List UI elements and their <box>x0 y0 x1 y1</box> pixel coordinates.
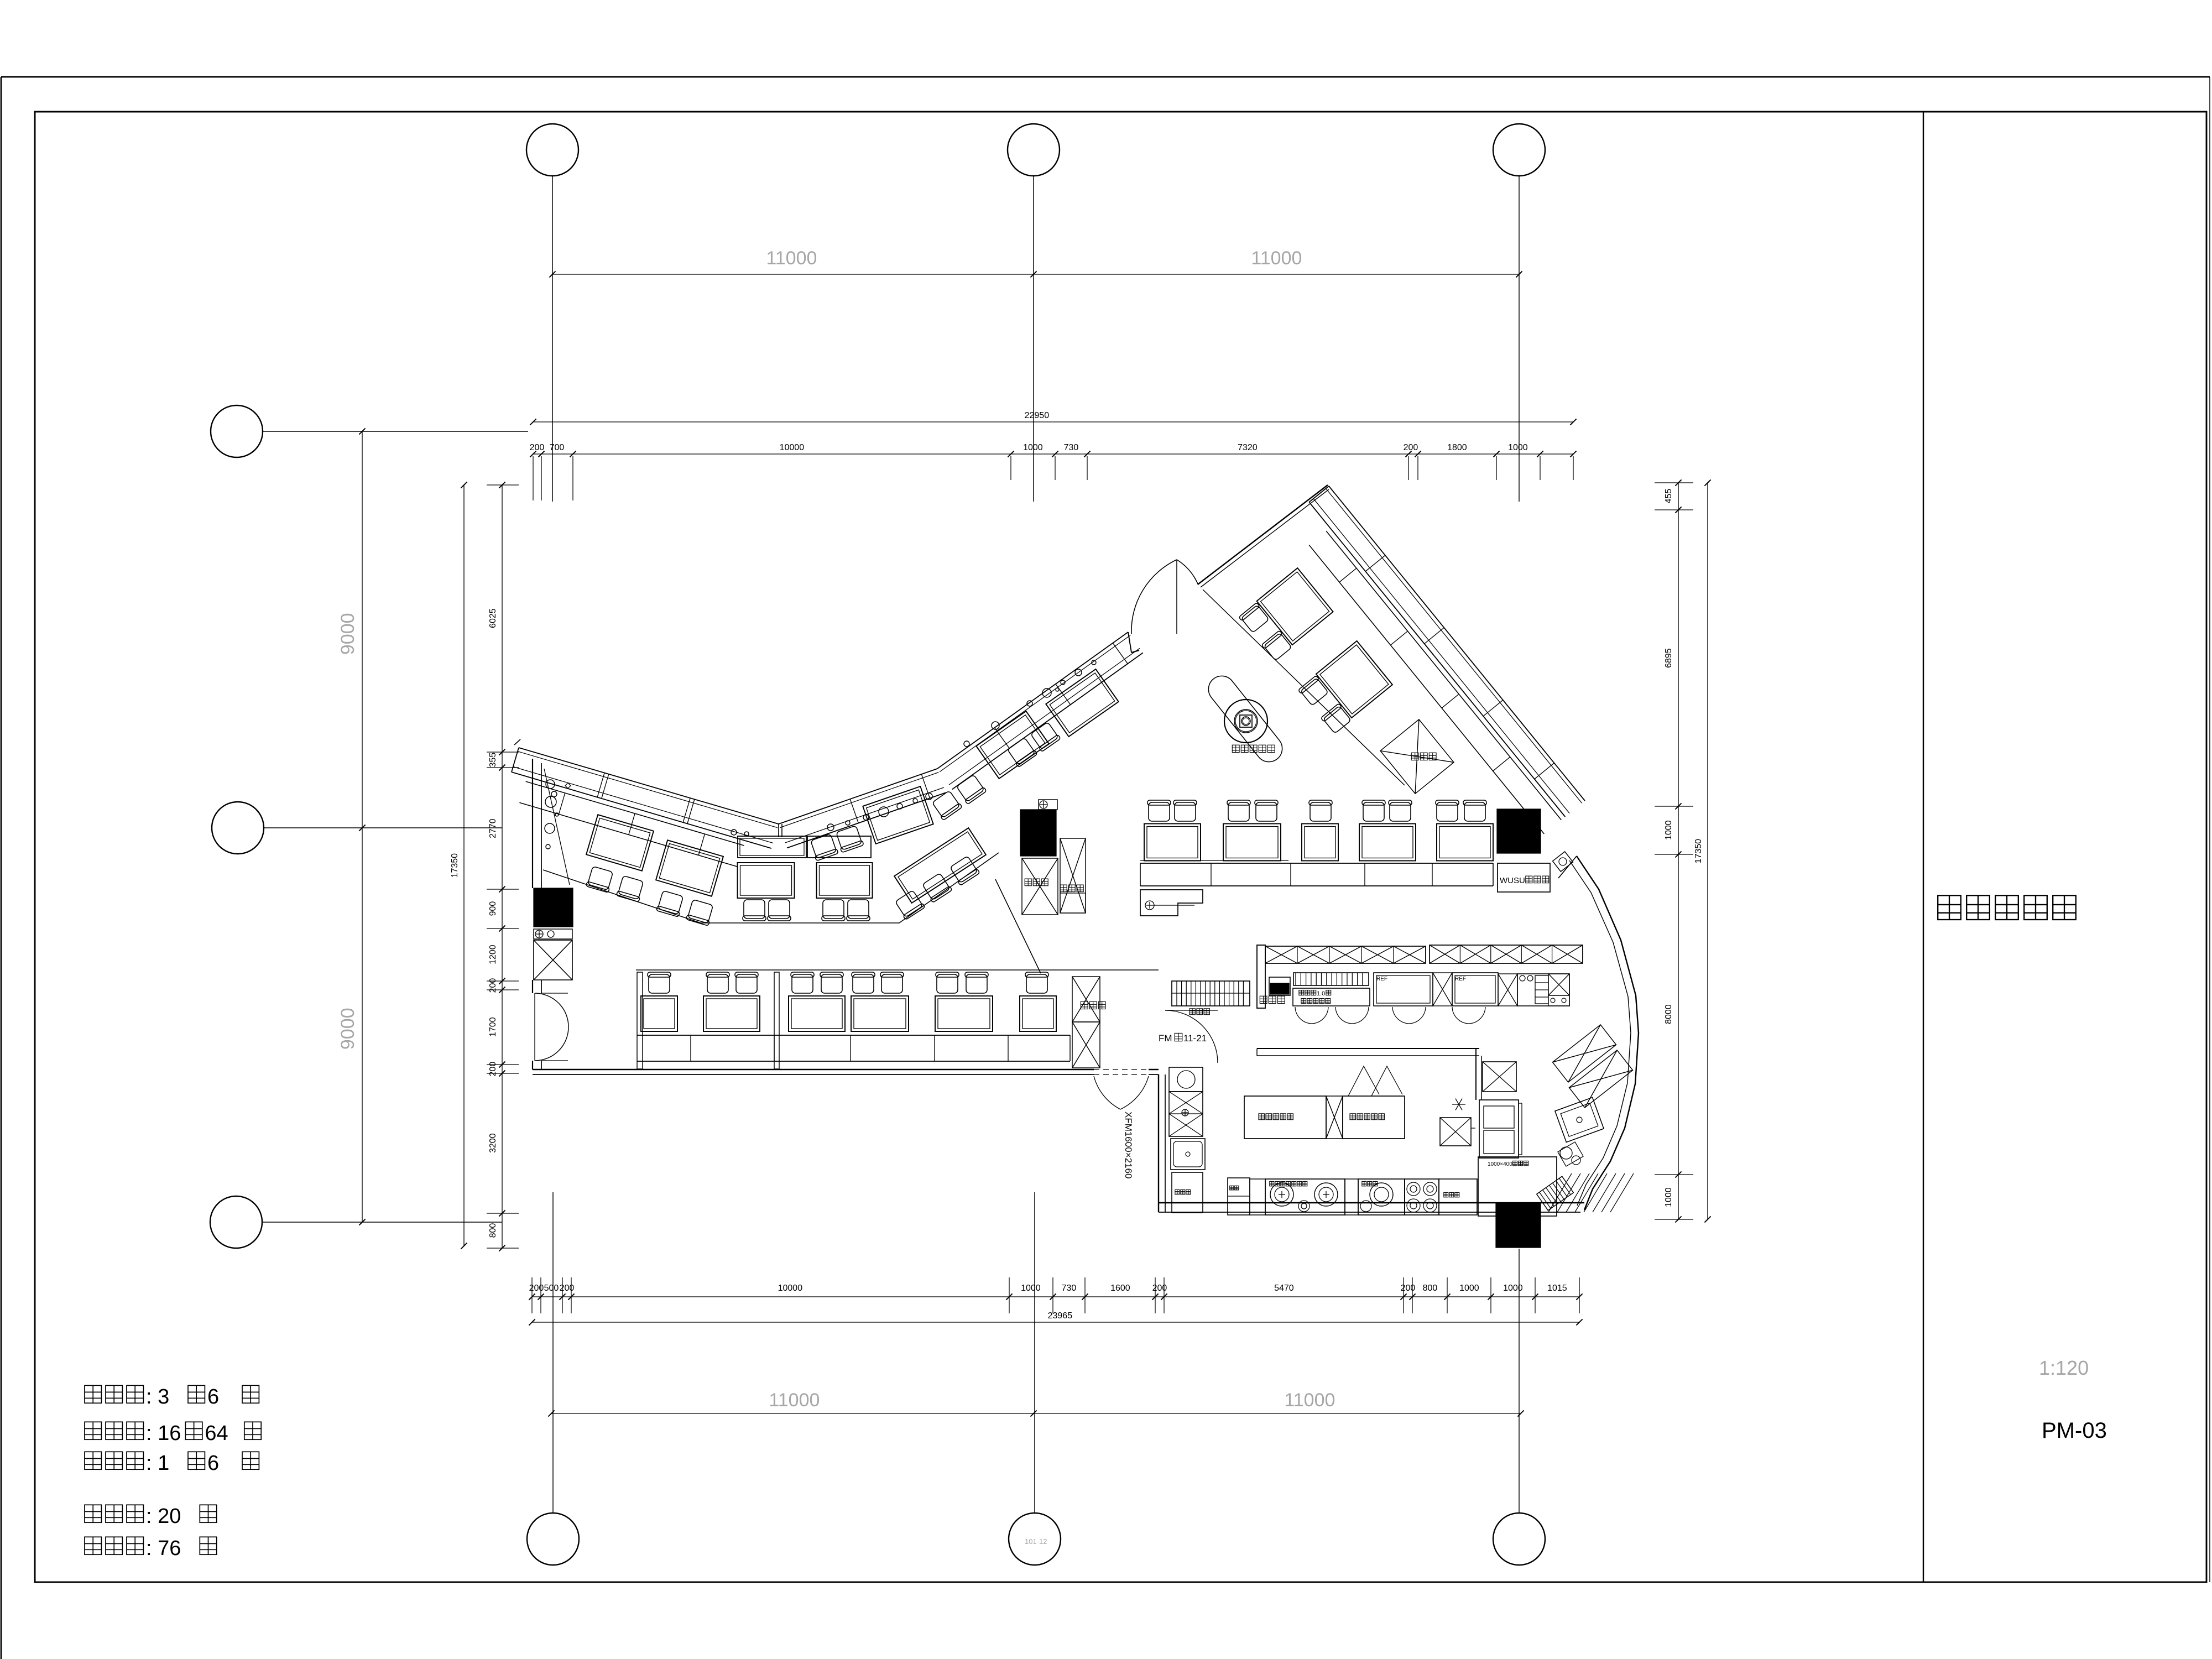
svg-text:700: 700 <box>550 443 565 452</box>
svg-text:WUSU: WUSU <box>1500 876 1525 885</box>
svg-text:FM: FM <box>1159 1033 1172 1044</box>
svg-text:: 16: : 16 <box>146 1422 181 1445</box>
svg-text:6: 6 <box>207 1452 219 1475</box>
svg-text:1000×400: 1000×400 <box>1488 1161 1512 1167</box>
svg-text:1000: 1000 <box>1503 1284 1523 1293</box>
svg-text:22950: 22950 <box>1025 411 1050 420</box>
svg-text:1200: 1200 <box>488 945 498 964</box>
svg-text:REF: REF <box>1376 976 1387 982</box>
svg-text:200: 200 <box>1152 1284 1167 1293</box>
svg-text:11000: 11000 <box>766 248 817 269</box>
svg-text:200: 200 <box>530 443 545 452</box>
svg-text:730: 730 <box>1064 443 1079 452</box>
svg-text:11-21: 11-21 <box>1183 1033 1207 1044</box>
svg-text:23965: 23965 <box>1048 1311 1073 1321</box>
svg-text:11000: 11000 <box>769 1390 820 1411</box>
svg-text:5470: 5470 <box>1274 1284 1294 1293</box>
svg-text:800: 800 <box>488 1223 498 1238</box>
svg-text:10000: 10000 <box>778 1284 803 1293</box>
svg-text:: 76: : 76 <box>146 1537 181 1560</box>
svg-text:6: 6 <box>207 1385 219 1408</box>
svg-text:1700: 1700 <box>488 1017 498 1037</box>
svg-text:1000: 1000 <box>1664 820 1673 840</box>
svg-text:6025: 6025 <box>488 608 498 628</box>
svg-text:1015: 1015 <box>1547 1284 1567 1293</box>
svg-text:3200: 3200 <box>488 1133 498 1153</box>
svg-text:1000: 1000 <box>1023 443 1043 452</box>
svg-text:1000: 1000 <box>1021 1284 1041 1293</box>
svg-text:1.0: 1.0 <box>1317 990 1325 997</box>
svg-text:9000: 9000 <box>337 613 358 655</box>
svg-text:1000: 1000 <box>1459 1284 1479 1293</box>
svg-text:: 3: : 3 <box>146 1385 169 1408</box>
svg-text:17350: 17350 <box>450 853 460 878</box>
svg-text:: 20: : 20 <box>146 1505 181 1528</box>
svg-text:200: 200 <box>529 1284 544 1293</box>
svg-text:REF: REF <box>1455 976 1466 982</box>
svg-text:XFM1600×2160: XFM1600×2160 <box>1123 1112 1134 1178</box>
svg-text:7320: 7320 <box>1238 443 1258 452</box>
svg-text:1800: 1800 <box>1447 443 1467 452</box>
svg-text:355: 355 <box>488 753 498 768</box>
svg-text:200: 200 <box>488 1062 498 1077</box>
svg-text:200: 200 <box>488 978 498 993</box>
svg-text:200: 200 <box>560 1284 575 1293</box>
svg-text:2770: 2770 <box>488 818 498 838</box>
svg-text:6895: 6895 <box>1664 648 1673 668</box>
svg-text:8000: 8000 <box>1664 1004 1673 1024</box>
svg-text:17350: 17350 <box>1694 839 1703 864</box>
svg-text:9000: 9000 <box>337 1008 358 1050</box>
svg-text:900: 900 <box>488 901 498 916</box>
svg-text:500: 500 <box>544 1284 559 1293</box>
svg-text:PM-03: PM-03 <box>2042 1418 2107 1443</box>
svg-text:11000: 11000 <box>1251 248 1302 269</box>
svg-text:1000: 1000 <box>1664 1187 1673 1207</box>
svg-text:730: 730 <box>1062 1284 1077 1293</box>
svg-text:: 1: : 1 <box>146 1452 169 1475</box>
svg-text:101-12: 101-12 <box>1025 1537 1047 1546</box>
svg-text:1600: 1600 <box>1110 1284 1130 1293</box>
svg-text:200: 200 <box>1401 1284 1416 1293</box>
svg-text:455: 455 <box>1664 489 1673 504</box>
svg-text:1000: 1000 <box>1508 443 1528 452</box>
svg-text:200: 200 <box>1404 443 1418 452</box>
svg-text:800: 800 <box>1423 1284 1438 1293</box>
svg-text:1:120: 1:120 <box>2039 1357 2089 1379</box>
svg-text:10000: 10000 <box>780 443 805 452</box>
svg-text:11000: 11000 <box>1284 1390 1335 1411</box>
svg-text:64: 64 <box>205 1422 228 1445</box>
